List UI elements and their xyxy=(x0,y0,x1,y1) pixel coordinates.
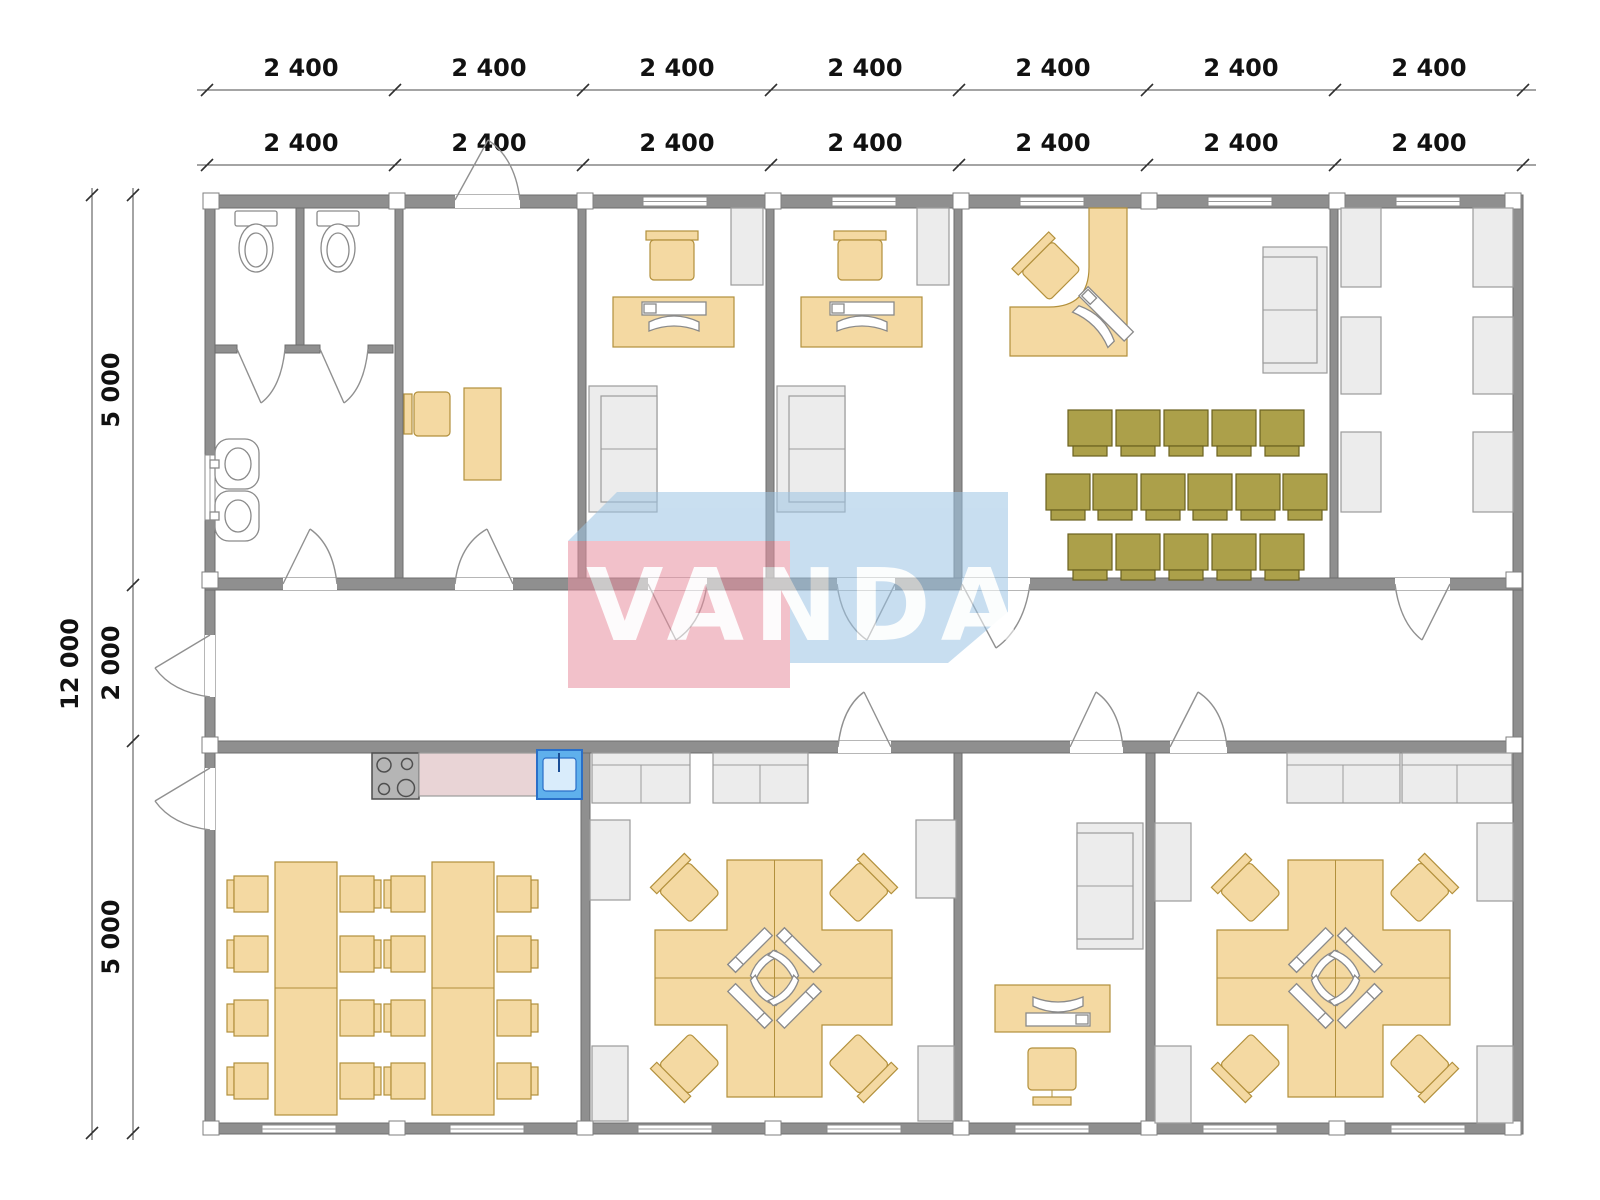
cabinet xyxy=(917,208,949,285)
dimension-top-outer: 2 400 2 400 2 400 2 400 2 400 2 400 2 40… xyxy=(197,54,1536,96)
room-open-office-1 xyxy=(590,753,956,1121)
room-private-office xyxy=(995,823,1143,1105)
washbasin-icon xyxy=(210,491,259,541)
cabinet xyxy=(1341,208,1381,287)
door-arc xyxy=(283,529,337,584)
dim-label: 2 400 xyxy=(451,54,526,82)
watermark: VANDA xyxy=(568,492,1028,688)
door-arc xyxy=(838,692,891,747)
workstation-pod xyxy=(650,853,897,1102)
door-arc xyxy=(320,349,368,403)
dim-label: 2 400 xyxy=(1015,54,1090,82)
office-chair-icon xyxy=(650,1031,721,1102)
counter-cabinet xyxy=(592,753,808,803)
dim-label: 2 400 xyxy=(263,129,338,157)
dim-label: 2 400 xyxy=(1391,54,1466,82)
room-toilets xyxy=(210,211,359,541)
office-chair-icon xyxy=(826,1031,897,1102)
cabinet xyxy=(1473,317,1513,394)
room-open-office-2 xyxy=(1155,753,1513,1123)
dining-table xyxy=(275,862,337,1115)
room-office-reception xyxy=(404,388,501,480)
cabinet xyxy=(1341,432,1381,512)
cabinet xyxy=(1341,317,1381,394)
dining-table xyxy=(432,862,494,1115)
audience-chair-row xyxy=(1068,534,1304,580)
audience-chair-row xyxy=(1068,410,1304,456)
audience-chair-row xyxy=(1046,474,1327,520)
door-arc xyxy=(237,349,285,403)
dim-label: 2 400 xyxy=(1391,129,1466,157)
cabinet xyxy=(1477,823,1513,901)
office-chair-icon xyxy=(646,231,698,280)
door-arc xyxy=(455,529,513,584)
room-training xyxy=(1010,208,1327,580)
office-chair-icon xyxy=(1028,1048,1076,1105)
door-arc xyxy=(155,768,210,830)
dim-label: 2 400 xyxy=(827,54,902,82)
cabinet xyxy=(916,820,956,898)
floor-plan-canvas: 2 400 2 400 2 400 2 400 2 400 2 400 2 40… xyxy=(0,0,1600,1200)
door-arc xyxy=(155,635,210,697)
office-chair-icon xyxy=(650,853,721,924)
dimension-left-total: 12 000 xyxy=(56,188,98,1140)
dim-label: 2 400 xyxy=(1203,129,1278,157)
toilet-icon xyxy=(317,211,359,272)
sofa xyxy=(1077,823,1143,949)
office-chair-icon xyxy=(1211,1031,1282,1102)
dim-label: 5 000 xyxy=(97,899,125,974)
workstation-pod xyxy=(1211,853,1458,1102)
cabinet xyxy=(1155,823,1191,901)
room-storage xyxy=(1341,208,1513,512)
dim-label: 2 400 xyxy=(827,129,902,157)
office-chair-icon xyxy=(1387,1031,1458,1102)
room-office-a xyxy=(589,208,763,512)
cabinet xyxy=(592,1046,628,1121)
office-chair-icon xyxy=(404,392,450,436)
dim-label: 2 400 xyxy=(1015,129,1090,157)
watermark-text: VANDA xyxy=(586,547,1028,664)
dimension-top-inner: 2 400 2 400 2 400 2 400 2 400 2 400 2 40… xyxy=(197,129,1536,171)
office-chair-icon xyxy=(834,231,886,280)
office-chair-icon xyxy=(1211,853,1282,924)
washbasin-icon xyxy=(210,439,259,489)
cabinet xyxy=(918,1046,954,1121)
stove-icon xyxy=(372,753,419,799)
cabinet xyxy=(1473,208,1513,287)
door-arc xyxy=(1070,692,1123,747)
dim-label: 5 000 xyxy=(97,352,125,427)
cabinet xyxy=(1155,1046,1191,1123)
office-chair-icon xyxy=(826,853,897,924)
desk xyxy=(464,388,501,480)
floor-plan-page: 2 400 2 400 2 400 2 400 2 400 2 400 2 40… xyxy=(0,0,1600,1200)
dimension-left-segments: 5 000 2 000 5 000 xyxy=(97,188,139,1140)
dim-label: 2 400 xyxy=(1203,54,1278,82)
room-dining xyxy=(227,750,582,1115)
door-arc xyxy=(1395,584,1450,640)
cabinet xyxy=(1477,1046,1513,1123)
kitchen-sink-icon xyxy=(537,750,582,799)
cabinet xyxy=(590,820,630,900)
dim-label: 2 000 xyxy=(97,625,125,700)
dim-label: 2 400 xyxy=(639,54,714,82)
sofa xyxy=(1263,247,1327,373)
room-office-b xyxy=(777,208,949,512)
cabinet xyxy=(1473,432,1513,512)
counter-cabinet xyxy=(1287,753,1512,803)
office-chair-icon xyxy=(1387,853,1458,924)
cabinet xyxy=(731,208,763,285)
office-chair-icon xyxy=(1012,232,1083,303)
toilet-icon xyxy=(235,211,277,272)
dim-label: 2 400 xyxy=(639,129,714,157)
dim-label: 2 400 xyxy=(263,54,338,82)
kitchen-counter xyxy=(419,753,537,796)
dim-label: 12 000 xyxy=(56,618,84,710)
door-arc xyxy=(1170,692,1227,747)
dim-label: 2 400 xyxy=(451,129,526,157)
